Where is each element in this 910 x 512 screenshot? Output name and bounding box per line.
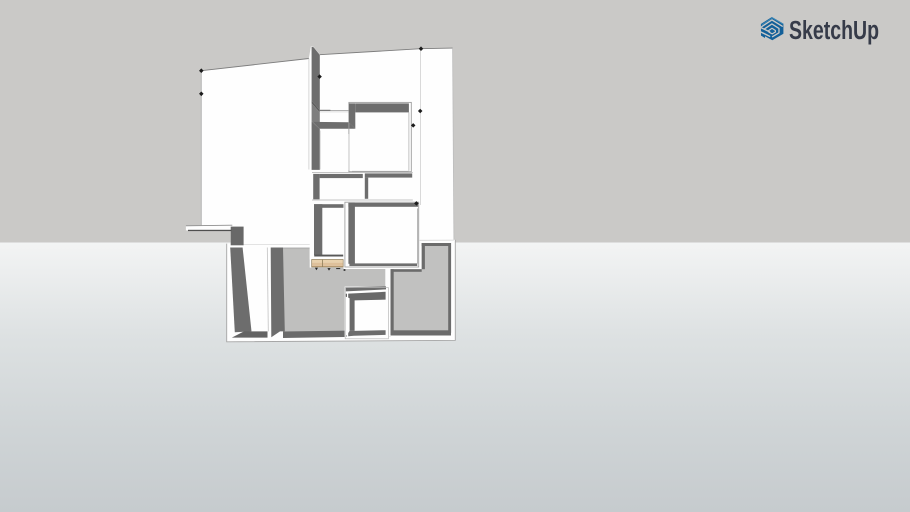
svg-text:SketchUp: SketchUp: [789, 17, 879, 45]
